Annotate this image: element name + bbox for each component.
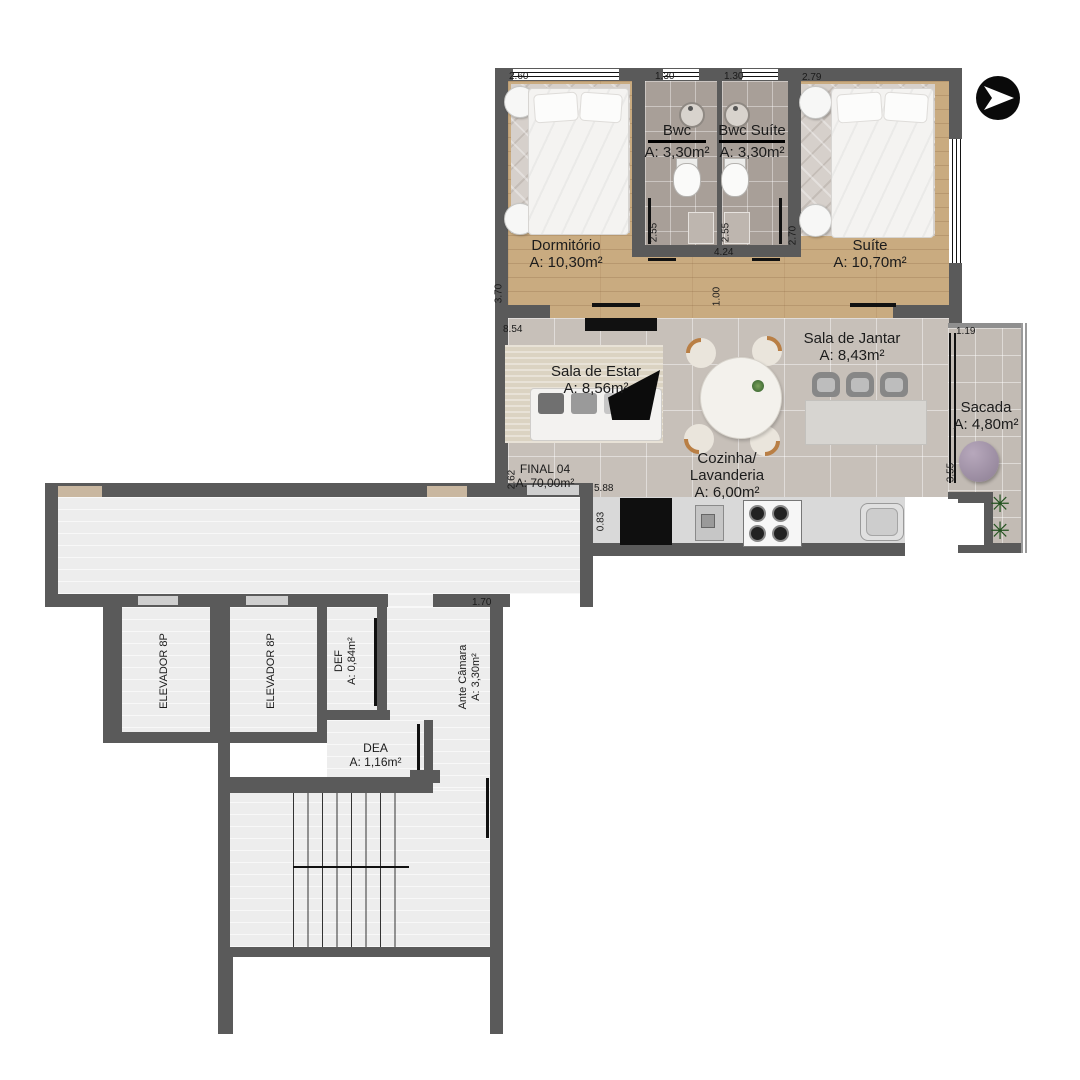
room-area: A: 8,43m² bbox=[789, 347, 915, 364]
room-area: A: 6,00m² bbox=[675, 484, 779, 501]
wall bbox=[632, 81, 645, 245]
pillow bbox=[579, 92, 623, 124]
refrigerator bbox=[620, 498, 672, 545]
room-name: DEF bbox=[333, 609, 346, 713]
wall bbox=[218, 777, 433, 793]
room-area: A: 3,30m² bbox=[470, 619, 483, 735]
room-name: Sacada bbox=[946, 399, 1026, 416]
bwc-door bbox=[648, 258, 676, 261]
unit-name: FINAL 04 bbox=[506, 462, 584, 476]
room-area: A: 3,30m² bbox=[713, 144, 791, 161]
burner bbox=[749, 525, 766, 542]
burner bbox=[749, 505, 766, 522]
bwc-suite-door bbox=[752, 258, 780, 261]
room-name: Bwc bbox=[643, 122, 711, 139]
room-area: A: 1,16m² bbox=[327, 755, 424, 769]
room-area: A: 0,84m² bbox=[346, 609, 359, 713]
bwc-suite-window bbox=[742, 69, 778, 80]
room-area: A: 8,56m² bbox=[534, 380, 658, 397]
corridor-wall-tile bbox=[427, 486, 467, 497]
burner bbox=[772, 505, 789, 522]
dim-label: 2.55 bbox=[649, 218, 660, 248]
divider-line bbox=[648, 140, 706, 143]
sacada-label: Sacada A: 4,80m² bbox=[946, 399, 1026, 433]
stair-landing-line bbox=[293, 866, 409, 868]
corridor-floor bbox=[58, 497, 580, 594]
dim-label: 1.00 bbox=[712, 282, 723, 312]
ante-camara-label: Ante Câmara A: 3,30m² bbox=[457, 619, 487, 735]
def-label: DEF A: 0,84m² bbox=[333, 609, 363, 713]
room-area: A: 10,70m² bbox=[808, 254, 932, 271]
dim-label: 4.24 bbox=[714, 247, 733, 258]
sacada-glass-rail bbox=[1021, 323, 1027, 553]
dim-label: 1.30 bbox=[724, 71, 743, 82]
sacada-door-opening bbox=[956, 503, 984, 545]
wall bbox=[45, 483, 58, 607]
shower-tray bbox=[688, 212, 714, 244]
wall bbox=[893, 305, 949, 318]
room-area: A: 10,30m² bbox=[505, 254, 627, 271]
room-name: DEA bbox=[327, 741, 424, 755]
nightstand bbox=[799, 86, 832, 119]
wall bbox=[218, 947, 503, 957]
wall bbox=[210, 607, 230, 732]
dim-label: 2.62 bbox=[507, 465, 518, 495]
wall bbox=[490, 957, 503, 1034]
wall bbox=[103, 594, 122, 743]
unit-label: FINAL 04 A: 70,00m² bbox=[506, 462, 584, 490]
elevator2-label: ELEVADOR 8P bbox=[265, 611, 281, 731]
dormitorio-door bbox=[592, 303, 640, 307]
floor-plan: ✳ ✳ Dormitório A: 10,30m² Bwc A: 3,30m² … bbox=[0, 0, 1080, 1080]
corridor-wall-tile bbox=[58, 486, 102, 497]
bwc-suite-label: Bwc Suíte A: 3,30m² bbox=[713, 122, 791, 161]
bar-stool bbox=[812, 372, 840, 397]
dim-label: 1.30 bbox=[655, 71, 674, 82]
wall bbox=[218, 957, 233, 1034]
pillow bbox=[533, 92, 579, 124]
stair-handrail bbox=[486, 778, 489, 838]
pillow bbox=[883, 92, 929, 124]
room-name: Dormitório bbox=[505, 237, 627, 254]
pillow bbox=[836, 91, 883, 123]
bwc-toilet bbox=[673, 163, 701, 197]
suite-door bbox=[850, 303, 896, 307]
bwc-label: Bwc A: 3,30m² bbox=[643, 122, 711, 161]
north-arrow-icon bbox=[975, 75, 1021, 121]
pouf bbox=[959, 441, 999, 482]
dim-label: 3.70 bbox=[494, 279, 505, 309]
plant-icon: ✳ bbox=[990, 521, 1010, 543]
dim-label: 1.19 bbox=[956, 326, 975, 337]
wall bbox=[103, 732, 327, 743]
room-area: A: 4,80m² bbox=[946, 416, 1026, 433]
dim-label: 3.55 bbox=[946, 458, 957, 488]
elevator2-door bbox=[246, 596, 288, 605]
room-name: Cozinha/ bbox=[675, 450, 779, 467]
dining-table bbox=[700, 357, 782, 439]
dim-label: 1.70 bbox=[472, 597, 491, 608]
room-name: Sala de Estar bbox=[534, 363, 658, 380]
kitchen-appliance bbox=[695, 505, 724, 541]
shower-glass bbox=[779, 198, 782, 244]
room-name: Ante Câmara bbox=[457, 619, 470, 735]
elevator1-door bbox=[138, 596, 178, 605]
wall bbox=[218, 732, 230, 957]
bar-stool bbox=[846, 372, 874, 397]
nightstand bbox=[799, 204, 832, 237]
sala-estar-label: Sala de Estar A: 8,56m² bbox=[534, 363, 658, 397]
dim-label: 8.54 bbox=[503, 324, 522, 335]
suite-window bbox=[949, 139, 962, 263]
table-plant bbox=[752, 380, 764, 392]
room-name: ELEVADOR 8P bbox=[158, 611, 171, 731]
bar-counter bbox=[805, 400, 927, 445]
wall bbox=[45, 594, 388, 607]
sala-jantar-label: Sala de Jantar A: 8,43m² bbox=[789, 330, 915, 364]
stair-treads bbox=[293, 793, 409, 947]
divider-line bbox=[719, 140, 785, 143]
wall bbox=[508, 305, 550, 318]
service-door-opening bbox=[905, 499, 958, 556]
bwc-suite-toilet bbox=[721, 163, 749, 197]
room-name: Lavanderia bbox=[675, 467, 779, 484]
room-name: Sala de Jantar bbox=[789, 330, 915, 347]
dim-label: 2.79 bbox=[802, 72, 821, 83]
room-name: ELEVADOR 8P bbox=[265, 611, 278, 731]
bar-stool bbox=[880, 372, 908, 397]
tv-console bbox=[585, 318, 657, 331]
room-name: Bwc Suíte bbox=[713, 122, 791, 139]
kitchen-sink bbox=[860, 503, 904, 541]
suite-label: Suíte A: 10,70m² bbox=[808, 237, 932, 271]
wall bbox=[377, 607, 387, 710]
unit-area: A: 70,00m² bbox=[506, 476, 584, 490]
dormitorio-window bbox=[513, 69, 619, 80]
dim-label: 2.60 bbox=[509, 71, 528, 82]
def-door bbox=[374, 618, 377, 706]
dim-label: 0.83 bbox=[596, 507, 607, 537]
elevator1-label: ELEVADOR 8P bbox=[158, 611, 174, 731]
dim-label: 5.88 bbox=[594, 483, 613, 494]
dormitorio-label: Dormitório A: 10,30m² bbox=[505, 237, 627, 271]
plant-icon: ✳ bbox=[990, 494, 1010, 516]
burner bbox=[772, 525, 789, 542]
cozinha-label: Cozinha/ Lavanderia A: 6,00m² bbox=[675, 450, 779, 501]
room-name: Suíte bbox=[808, 237, 932, 254]
wall bbox=[490, 594, 503, 957]
wall bbox=[317, 607, 327, 732]
ante-doorway bbox=[388, 594, 433, 607]
dim-label: 2.55 bbox=[721, 218, 732, 248]
dea-label: DEA A: 1,16m² bbox=[327, 741, 424, 769]
dim-label: 2.70 bbox=[788, 221, 799, 251]
room-area: A: 3,30m² bbox=[643, 144, 711, 161]
